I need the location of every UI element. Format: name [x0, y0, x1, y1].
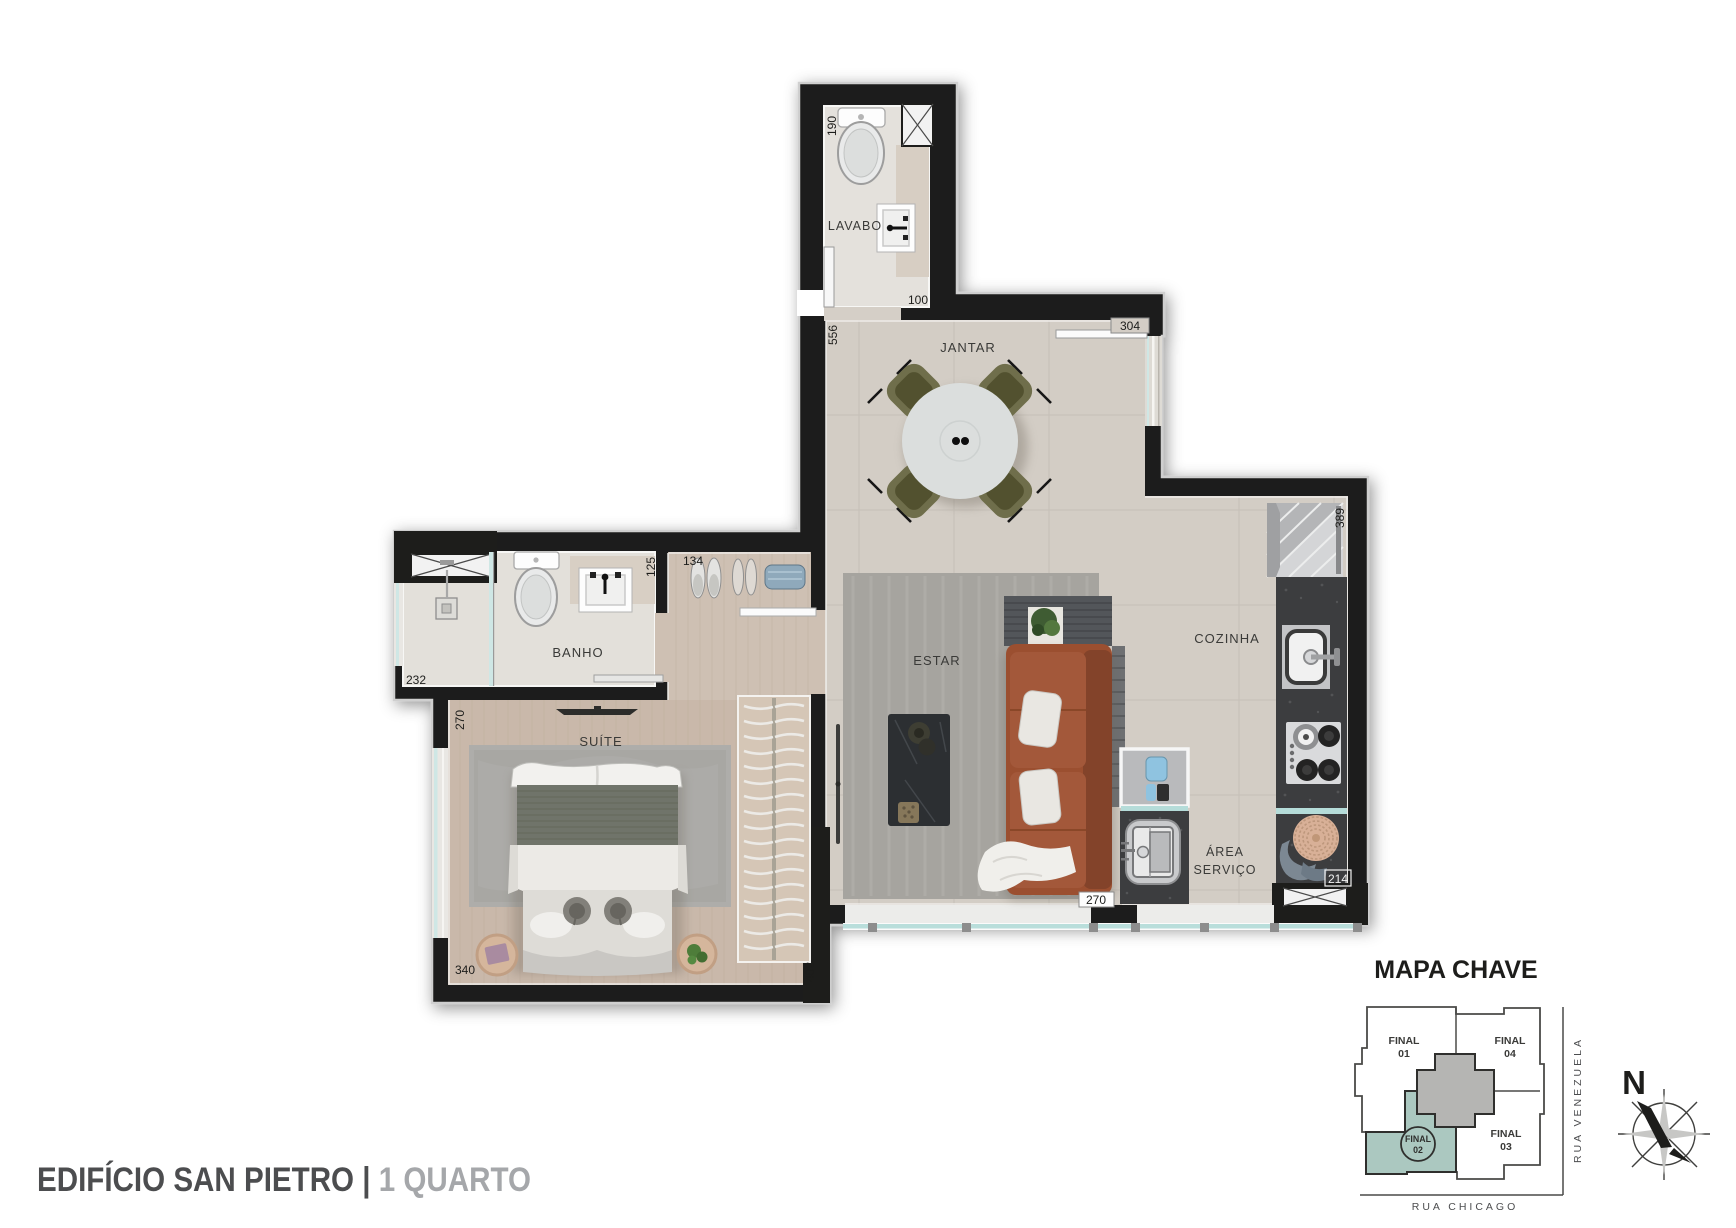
- svg-text:340: 340: [455, 963, 475, 977]
- svg-text:02: 02: [1413, 1145, 1423, 1155]
- svg-text:03: 03: [1500, 1141, 1512, 1153]
- svg-text:JANTAR: JANTAR: [940, 340, 996, 355]
- svg-text:FINAL: FINAL: [1389, 1035, 1420, 1047]
- svg-text:ESTAR: ESTAR: [913, 653, 960, 668]
- svg-text:125: 125: [644, 557, 658, 577]
- svg-text:270: 270: [453, 710, 467, 730]
- svg-text:01: 01: [1398, 1048, 1410, 1060]
- svg-text:232: 232: [406, 673, 426, 687]
- svg-text:SUÍTE: SUÍTE: [579, 734, 622, 749]
- svg-text:ÁREA: ÁREA: [1206, 844, 1244, 859]
- svg-text:556: 556: [826, 325, 840, 345]
- svg-text:LAVABO: LAVABO: [828, 219, 882, 233]
- svg-text:134: 134: [683, 554, 703, 568]
- svg-text:RUA CHICAGO: RUA CHICAGO: [1412, 1201, 1519, 1213]
- svg-text:389: 389: [1333, 508, 1347, 528]
- svg-text:190: 190: [825, 116, 839, 136]
- svg-text:N: N: [1622, 1064, 1646, 1101]
- svg-text:COZINHA: COZINHA: [1194, 631, 1260, 646]
- svg-text:EDIFÍCIO SAN PIETRO | 1 QUARTO: EDIFÍCIO SAN PIETRO | 1 QUARTO: [37, 1161, 531, 1199]
- svg-text:BANHO: BANHO: [552, 645, 603, 660]
- svg-text:270: 270: [1086, 893, 1106, 907]
- svg-text:04: 04: [1504, 1048, 1516, 1060]
- svg-text:FINAL: FINAL: [1491, 1128, 1522, 1140]
- svg-text:402: 402: [803, 962, 817, 982]
- svg-text:214: 214: [1328, 872, 1348, 886]
- svg-text:FINAL: FINAL: [1405, 1134, 1432, 1144]
- svg-text:MAPA CHAVE: MAPA CHAVE: [1374, 956, 1537, 984]
- svg-text:RUA VENEZUELA: RUA VENEZUELA: [1572, 1037, 1584, 1163]
- svg-text:SERVIÇO: SERVIÇO: [1193, 863, 1256, 877]
- svg-text:FINAL: FINAL: [1495, 1035, 1526, 1047]
- svg-text:304: 304: [1120, 319, 1140, 333]
- svg-text:100: 100: [908, 293, 928, 307]
